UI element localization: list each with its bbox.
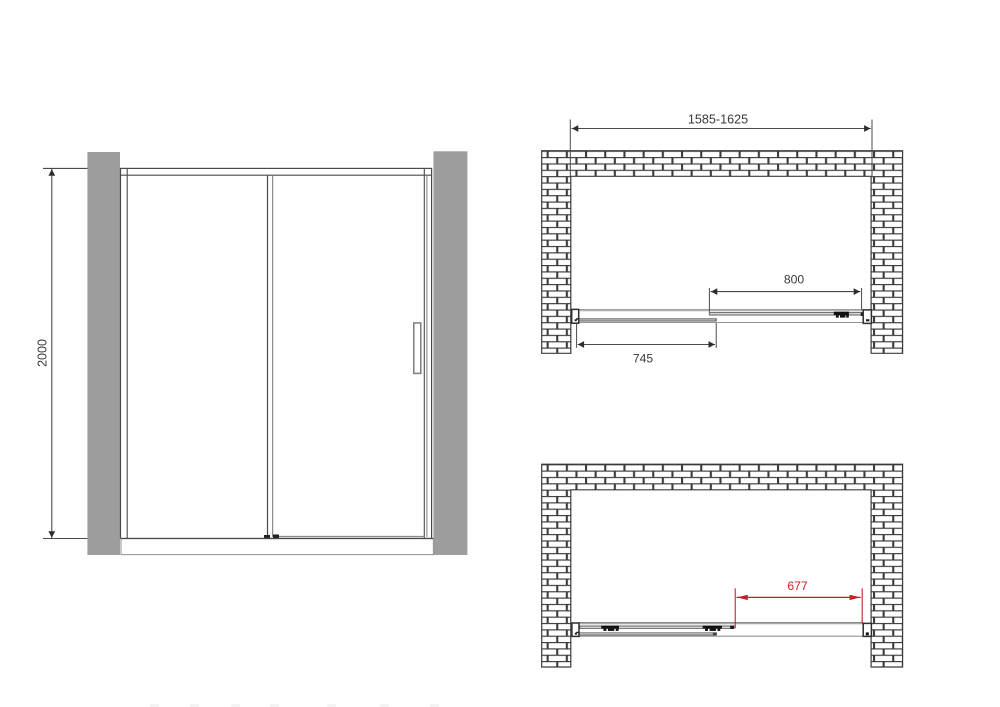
svg-text:2000: 2000 [36,339,50,367]
svg-text:1585-1625: 1585-1625 [688,113,748,127]
svg-text:677: 677 [787,579,808,593]
svg-text:745: 745 [633,351,654,365]
svg-text:800: 800 [784,273,805,287]
